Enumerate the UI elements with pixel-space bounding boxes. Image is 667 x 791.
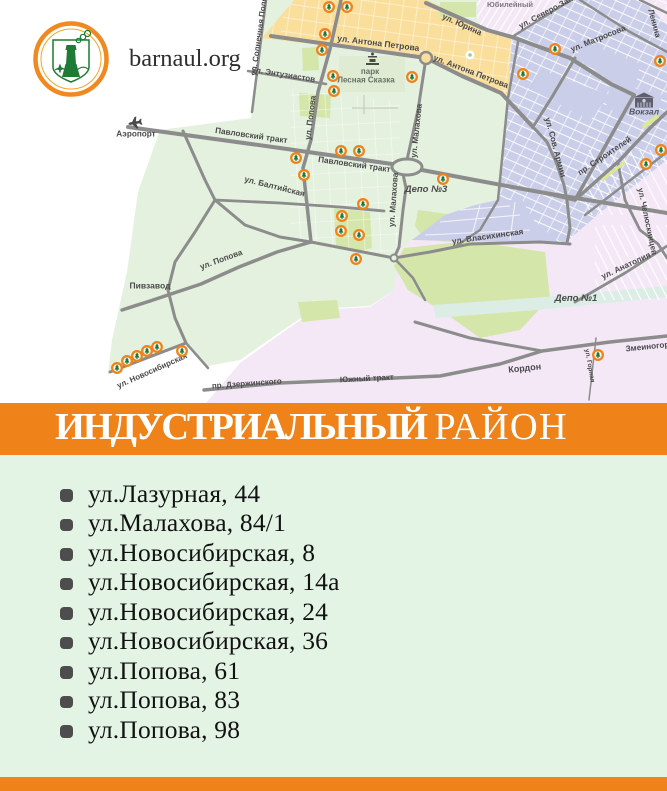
svg-text:Аэропорт: Аэропорт <box>116 130 155 139</box>
svg-text:Вокзал: Вокзал <box>629 107 660 117</box>
svg-text:Лесная Сказка: Лесная Сказка <box>337 76 395 85</box>
svg-text:Юбилейный: Юбилейный <box>487 0 533 9</box>
svg-text:Пивзавод: Пивзавод <box>130 281 172 291</box>
svg-text:Депо №3: Депо №3 <box>404 184 448 195</box>
svg-text:Депо №1: Депо №1 <box>554 293 598 304</box>
